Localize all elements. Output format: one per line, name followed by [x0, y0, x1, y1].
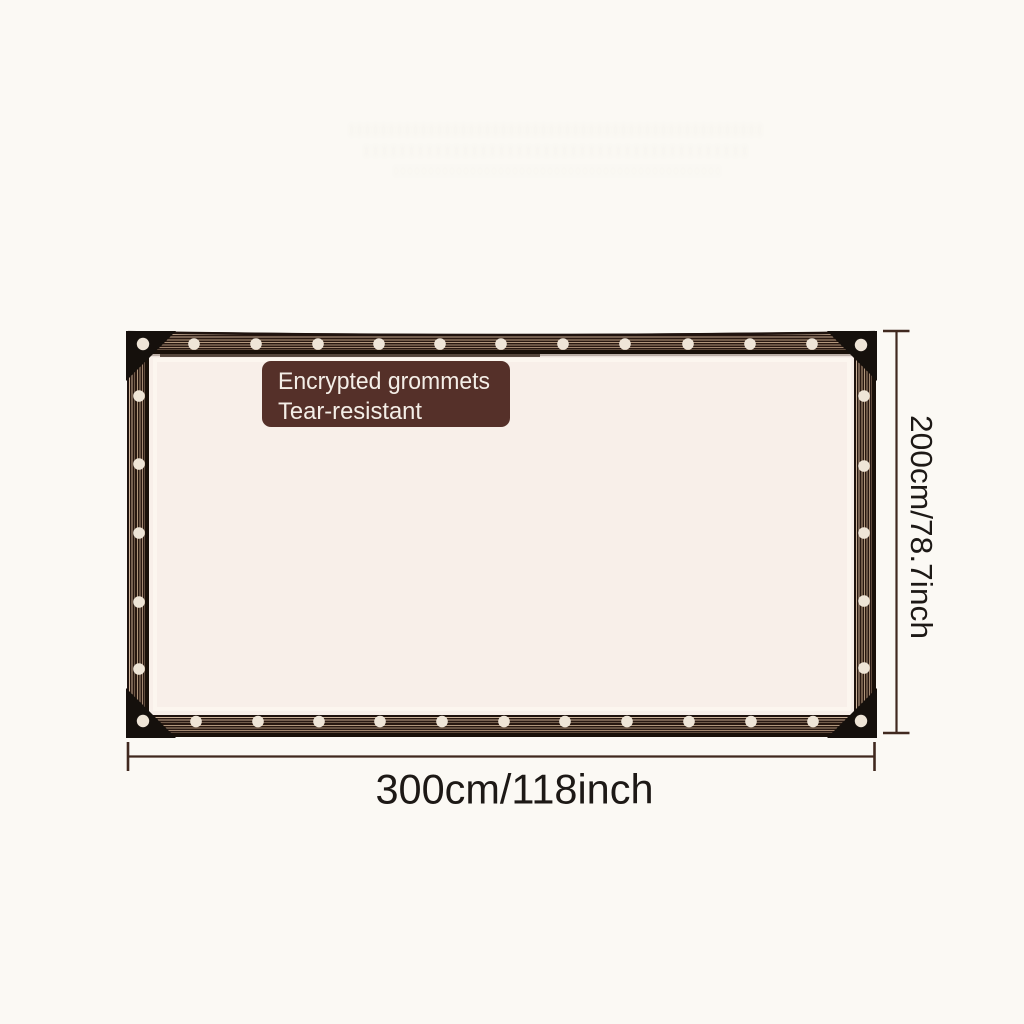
svg-text:300cm/118inch: 300cm/118inch [376, 766, 654, 813]
svg-text:Tear-resistant: Tear-resistant [278, 398, 422, 425]
svg-text:200cm/78.7inch: 200cm/78.7inch [904, 415, 939, 639]
svg-text:Encrypted grommets: Encrypted grommets [278, 368, 490, 395]
